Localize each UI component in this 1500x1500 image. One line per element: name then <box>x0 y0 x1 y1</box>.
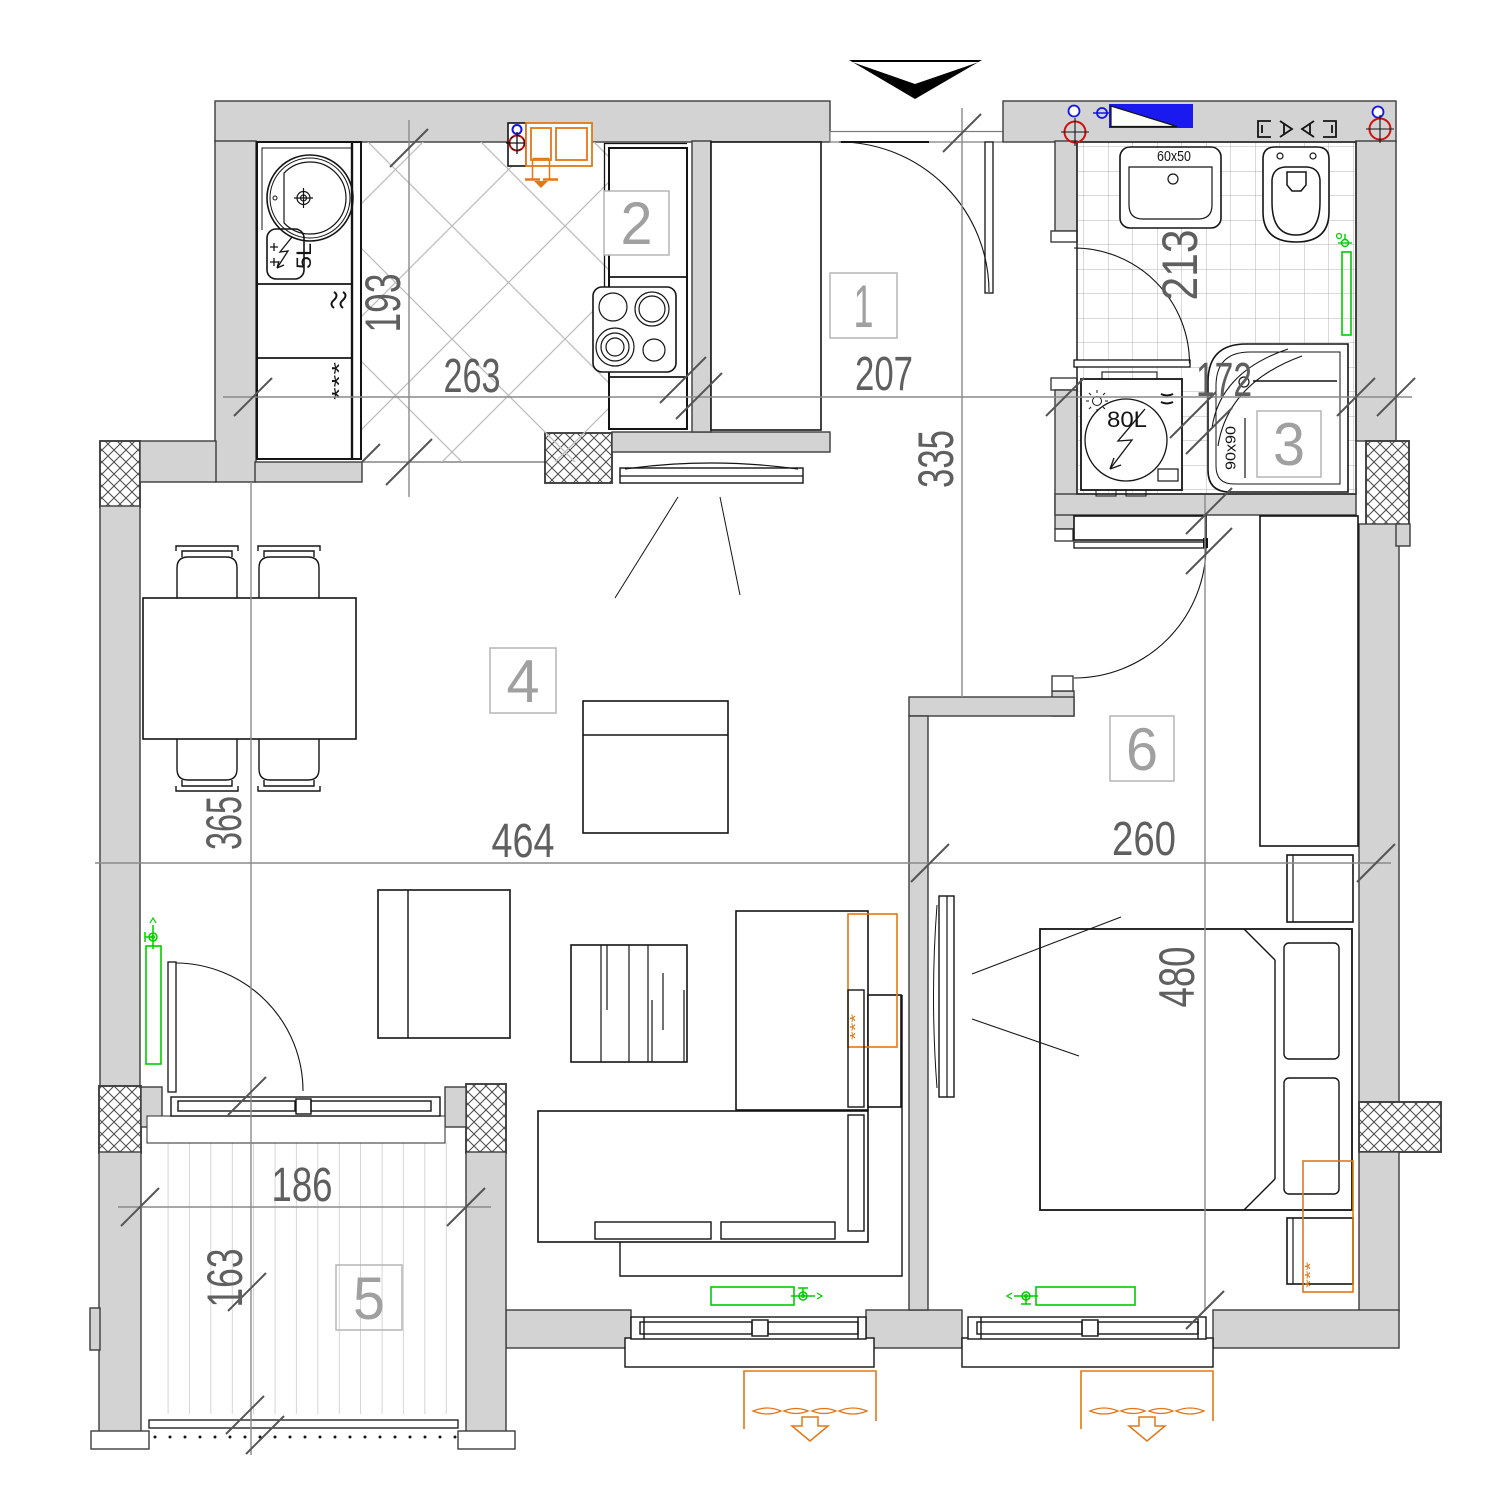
svg-text:193: 193 <box>355 274 411 333</box>
svg-text:***: *** <box>847 1014 864 1040</box>
svg-text:464: 464 <box>492 815 555 868</box>
svg-text:6: 6 <box>1126 716 1158 783</box>
svg-text:365: 365 <box>196 796 252 850</box>
svg-text:5: 5 <box>353 1265 385 1332</box>
svg-text:60x50: 60x50 <box>1157 149 1191 165</box>
svg-text:***: *** <box>1302 1262 1319 1288</box>
svg-text:80L: 80L <box>1107 407 1147 432</box>
svg-text:186: 186 <box>272 1159 333 1212</box>
svg-text:90x90: 90x90 <box>1223 426 1240 470</box>
svg-text:335: 335 <box>908 430 964 488</box>
svg-text:2: 2 <box>621 190 653 257</box>
svg-text:5L: 5L <box>293 243 316 269</box>
svg-text:3: 3 <box>1273 411 1305 478</box>
svg-text:260: 260 <box>1112 813 1176 866</box>
svg-text:263: 263 <box>444 350 501 403</box>
svg-text:207: 207 <box>855 348 913 401</box>
svg-text:163: 163 <box>197 1249 253 1308</box>
svg-text:480: 480 <box>1149 947 1205 1008</box>
svg-text:1: 1 <box>854 273 874 340</box>
svg-text:4: 4 <box>507 648 540 715</box>
svg-text:172: 172 <box>1196 354 1252 407</box>
svg-text:***: *** <box>329 362 351 400</box>
svg-text:213: 213 <box>1152 230 1208 301</box>
